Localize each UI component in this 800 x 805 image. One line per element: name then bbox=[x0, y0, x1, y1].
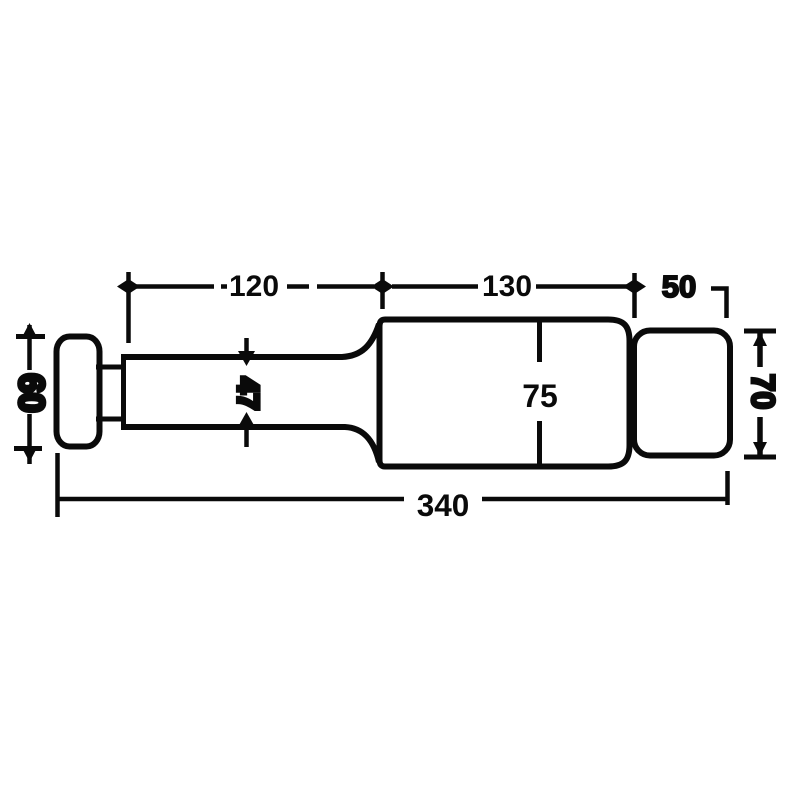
svg-text:50: 50 bbox=[662, 269, 696, 304]
svg-text:120: 120 bbox=[229, 270, 279, 303]
svg-text:130: 130 bbox=[482, 270, 532, 303]
svg-text:47: 47 bbox=[231, 377, 264, 410]
svg-text:70: 70 bbox=[745, 374, 781, 410]
svg-text:60: 60 bbox=[12, 374, 51, 413]
svg-text:340: 340 bbox=[417, 487, 470, 523]
svg-text:75: 75 bbox=[522, 378, 558, 414]
